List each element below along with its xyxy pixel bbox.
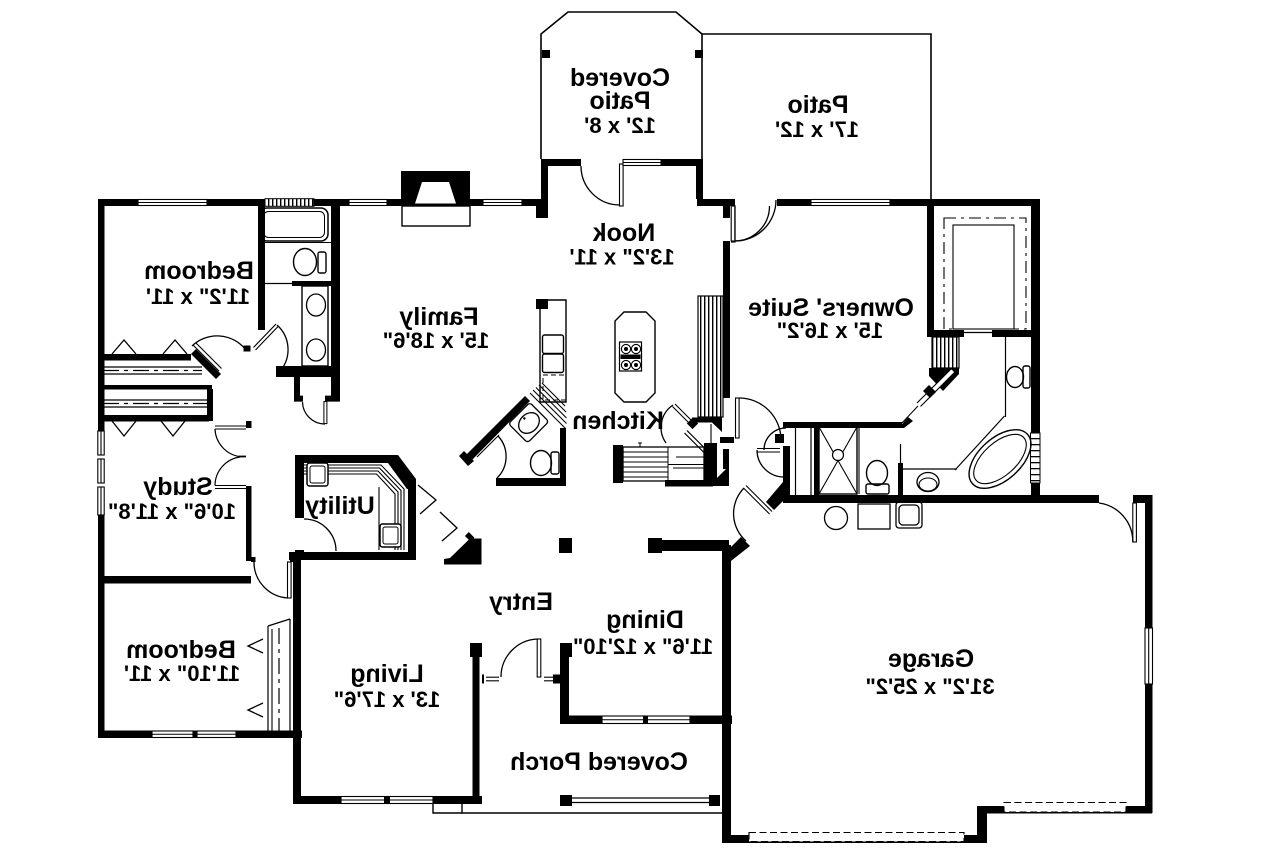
- svg-text:Family: Family: [399, 303, 478, 331]
- svg-text:10'6" x 11'8": 10'6" x 11'8": [108, 499, 236, 524]
- svg-text:Patio: Patio: [787, 91, 848, 119]
- svg-text:11'2" x 11': 11'2" x 11': [146, 284, 250, 309]
- svg-text:12' x 8': 12' x 8': [584, 113, 656, 138]
- svg-text:Kitchen: Kitchen: [572, 407, 664, 435]
- svg-text:Living: Living: [350, 660, 424, 688]
- svg-text:Study: Study: [143, 473, 213, 501]
- svg-text:11'6" x 12'10": 11'6" x 12'10": [573, 634, 713, 659]
- svg-text:15' x 18'6": 15' x 18'6": [383, 328, 490, 353]
- svg-text:Utility: Utility: [305, 492, 375, 520]
- svg-text:Entry: Entry: [489, 588, 553, 616]
- svg-text:Patio: Patio: [589, 87, 650, 115]
- svg-text:13' x 17'6": 13' x 17'6": [334, 687, 441, 712]
- svg-text:11'10" x 11': 11'10" x 11': [124, 661, 240, 686]
- svg-text:Covered Porch: Covered Porch: [510, 748, 688, 776]
- svg-text:31'2" x 25'2": 31'2" x 25'2": [865, 674, 994, 699]
- svg-text:15' x 16'2": 15' x 16'2": [777, 318, 884, 343]
- svg-text:Bedroom: Bedroom: [144, 257, 254, 285]
- svg-text:17' x 12': 17' x 12': [775, 117, 859, 142]
- svg-text:Nook: Nook: [593, 219, 656, 247]
- svg-text:13'2" x 11': 13'2" x 11': [569, 245, 674, 270]
- svg-text:Garage: Garage: [888, 645, 974, 673]
- svg-text:Bedroom: Bedroom: [126, 636, 236, 664]
- svg-text:Dining: Dining: [606, 606, 684, 634]
